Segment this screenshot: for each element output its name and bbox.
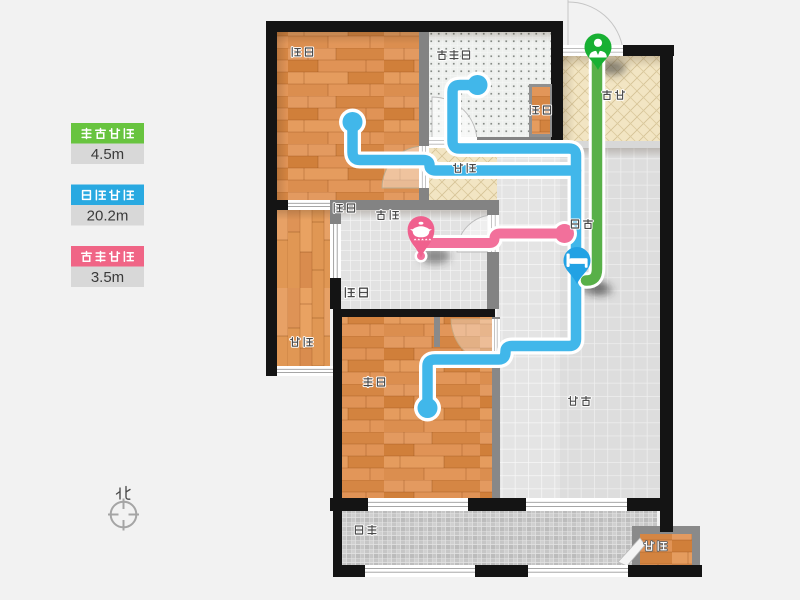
svg-text:20.2m: 20.2m [87,208,129,225]
svg-text:4.5m: 4.5m [91,146,124,163]
svg-text:3.5m: 3.5m [91,269,124,286]
